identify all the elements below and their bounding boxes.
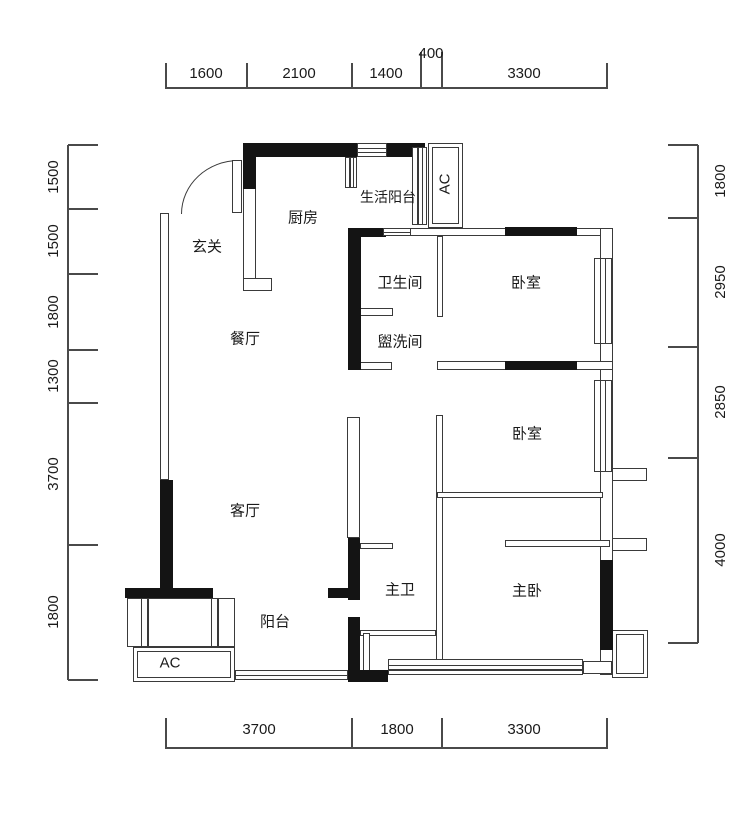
window-balcony-bay [127, 598, 235, 647]
wall-kitchen-top [243, 143, 357, 157]
dimension-tick [68, 349, 98, 351]
dimension-tick [68, 544, 98, 546]
wall-masterbath-divider [360, 630, 436, 636]
wall-bedroom2-bottom [437, 492, 603, 498]
dimension-tick [246, 63, 248, 88]
dimension-tick [606, 718, 608, 748]
dimension-tick [668, 457, 698, 459]
door-arc [181, 160, 239, 214]
room-label-washroom: 盥洗间 [377, 331, 422, 352]
room-label-ac-top: AC [437, 174, 454, 195]
window-balcony-ac-divider [412, 147, 427, 225]
door-leaf [232, 160, 242, 213]
room-label-living: 客厅 [230, 500, 260, 521]
window-master-bottom [388, 659, 583, 675]
dimension-tick [68, 144, 98, 146]
wall-kitchen-stub [243, 278, 272, 291]
wall-bedroom1-top-thin [385, 228, 613, 236]
dimension-label: 1800 [367, 722, 427, 738]
dimension-tick [165, 63, 167, 88]
window-bedroom-top-small [383, 228, 411, 236]
dimension-label: 1300 [46, 346, 62, 406]
dimension-label: 2100 [269, 66, 329, 82]
dimension-label: 3300 [494, 722, 554, 738]
dimension-tick [668, 144, 698, 146]
dimension-tick [351, 63, 353, 88]
dimension-label: 1500 [46, 211, 62, 271]
window-kitchen-balcony [345, 157, 357, 188]
dimension-label: 400 [401, 46, 461, 62]
dimension-tick [68, 402, 98, 404]
floor-plan: 1600 2100 1400 400 3300 3700 1800 3300 1… [0, 0, 750, 827]
dimension-tick [606, 63, 608, 88]
dimension-label: 2950 [713, 252, 729, 312]
ac-box-inner-line [616, 634, 644, 674]
ac-bracket-upper [613, 468, 647, 481]
dimension-tick [668, 346, 698, 348]
dimension-line-top [165, 87, 608, 89]
wall-kitchen-left [243, 187, 256, 290]
dimension-label: 1800 [713, 151, 729, 211]
dimension-tick [68, 679, 98, 681]
room-label-master-bath: 主卫 [385, 579, 415, 600]
wall-washroom-bottom [358, 362, 392, 370]
dimension-line-left [67, 145, 69, 680]
wall-bedroom1-bottom [505, 361, 577, 370]
wall-bathroom-top [348, 228, 386, 237]
room-label-living-balcony: 生活阳台 [360, 187, 416, 207]
wall-washroom-divider [360, 308, 393, 316]
dimension-label: 2850 [713, 372, 729, 432]
ac-box-inner-line [137, 651, 231, 678]
wall-bedroom1-top [505, 227, 577, 236]
room-label-master-bedroom: 主卧 [512, 580, 542, 601]
wall-master-top [505, 540, 610, 547]
room-label-ac-bottom: AC [160, 655, 181, 672]
dimension-label: 1800 [46, 282, 62, 342]
dimension-tick [68, 273, 98, 275]
window-bedroom1 [594, 258, 612, 344]
window-bedroom2 [594, 380, 612, 472]
dimension-line-bottom [165, 747, 608, 749]
window-balcony-rail [235, 670, 348, 680]
wall-bottom-corner [348, 670, 388, 682]
ac-box-bottom-left [133, 647, 235, 682]
room-label-dining: 餐厅 [230, 328, 260, 349]
ac-bracket-lower [613, 538, 647, 551]
room-label-balcony: 阳台 [260, 611, 290, 632]
dimension-label: 3300 [494, 66, 554, 82]
wall-bathroom-left [348, 228, 361, 370]
dimension-label: 3700 [46, 444, 62, 504]
wall-master-bottom-end [583, 661, 612, 674]
room-label-entry: 玄关 [192, 236, 222, 257]
wall-bedroom2-left [436, 415, 443, 673]
dimension-label: 1400 [356, 66, 416, 82]
wall-corridor-left [347, 417, 360, 538]
room-label-kitchen: 厨房 [288, 207, 318, 228]
room-label-bedroom1: 卧室 [511, 272, 541, 293]
wall-left-exterior [160, 213, 169, 480]
wall-bathroom-divider [437, 236, 443, 317]
wall-kitchen-corner [243, 157, 256, 189]
wall-living-left [160, 480, 173, 590]
dimension-label: 1600 [176, 66, 236, 82]
dimension-tick [668, 217, 698, 219]
dimension-tick [351, 718, 353, 748]
dimension-label: 4000 [713, 520, 729, 580]
wall-masterbath-top [360, 543, 393, 549]
dimension-label: 1800 [46, 582, 62, 642]
dimension-label: 1500 [46, 147, 62, 207]
wall-master-right [600, 560, 613, 650]
window-balcony-top [357, 143, 387, 157]
dimension-tick [165, 718, 167, 748]
dimension-tick [68, 208, 98, 210]
wall-masterbath-left-upper [348, 538, 360, 600]
dimension-tick [668, 642, 698, 644]
room-label-bathroom: 卫生间 [377, 272, 422, 293]
dimension-label: 3700 [229, 722, 289, 738]
ac-box-bottom-right [612, 630, 648, 678]
wall-balcony-stub [328, 588, 348, 598]
wall-balcony-top-bar [125, 588, 213, 598]
wall-masterbath-inner [363, 633, 370, 673]
dimension-line-right [697, 145, 699, 643]
dimension-tick [441, 718, 443, 748]
room-label-bedroom2: 卧室 [512, 423, 542, 444]
